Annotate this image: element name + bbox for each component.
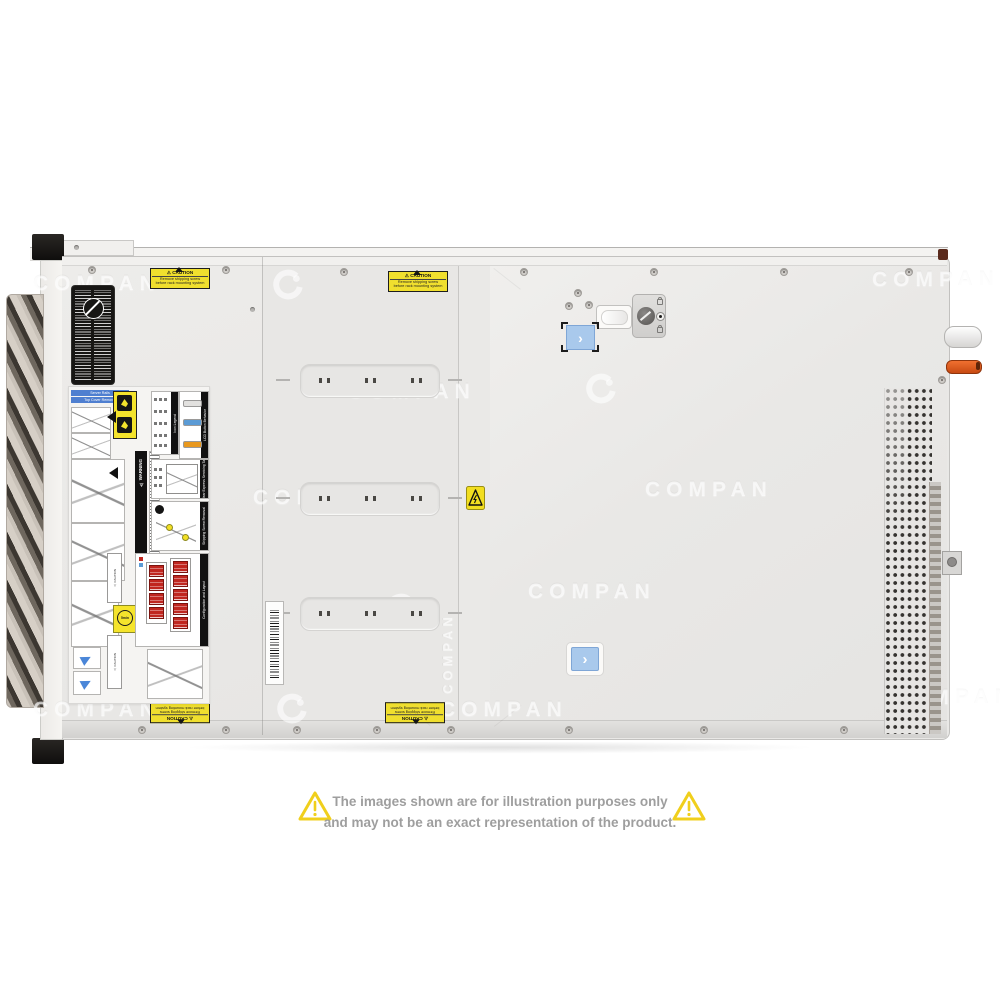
icon-legend-title: Icon Legend [173, 414, 177, 433]
rear-screw-stub [938, 249, 948, 260]
latch-arrow-icon [73, 671, 101, 695]
screw [565, 302, 573, 310]
pinch-hazard-sticker [113, 391, 137, 439]
drive-block [149, 593, 164, 605]
caution-strip: ⚠ CAUTION [107, 635, 122, 689]
vent-hole [250, 307, 255, 312]
cover-release-latch: › [562, 323, 598, 351]
caution-label: ⚠ CAUTION Remove shipping screw before r… [150, 268, 210, 289]
caution-label: ⚠ CAUTION Remove shipping screw before r… [385, 702, 445, 723]
screw-icon [155, 505, 164, 514]
watermark-text: COMPAN [872, 268, 1000, 292]
hand-pinch-icon [117, 395, 132, 411]
disclaimer-line-1: The images shown are for illustration pu… [0, 792, 1000, 813]
legend-row [154, 468, 163, 471]
caution-line: before rack mounting system [152, 705, 208, 710]
lcd-sticker-title: LCD Button Behavior [203, 409, 207, 441]
cover-release-latch: › [566, 642, 604, 676]
lcd-bar-gray [183, 400, 202, 407]
round-connector-knob [944, 326, 982, 348]
highlight-dot [166, 524, 173, 531]
barcode [270, 608, 279, 678]
screw [700, 726, 708, 734]
no-symbol-icon [83, 298, 104, 319]
screw [905, 268, 913, 276]
disclaimer-line-2: and may not be an exact representation o… [0, 813, 1000, 834]
shipping-diagram [156, 517, 196, 545]
watermark-text: COMPAN [440, 698, 568, 722]
lcd-behavior-sticker: LCD Button Behavior [179, 391, 209, 459]
vent-dots [319, 378, 332, 383]
config-title: Configuration and Layout [202, 581, 206, 619]
screw [340, 268, 348, 276]
legend-row [154, 444, 168, 447]
recessed-handle-slot [300, 482, 440, 516]
caution-line: before rack mounting system [387, 705, 443, 710]
caution-strip-title: ⚠ CAUTION [113, 653, 117, 671]
drive-block [173, 603, 188, 615]
seam-tick [276, 379, 290, 381]
screw [447, 726, 455, 734]
vent-dots [365, 611, 378, 616]
vent-dots [411, 611, 424, 616]
shipping-title: Shipping Screw Removal [202, 507, 206, 545]
screw [840, 726, 848, 734]
screw [222, 266, 230, 274]
lcd-bar-orange [183, 441, 202, 448]
screw [780, 268, 788, 276]
product-photo: COMPAN COMPAN COMPAN COMPAN COMPAN COMPA… [0, 0, 1000, 1000]
caution-strip: ⚠ CAUTION [107, 553, 122, 603]
warning-title: ⚠ WARNING [138, 459, 143, 486]
seam-tick [448, 497, 462, 499]
screw [373, 726, 381, 734]
orange-release-handle [946, 360, 982, 374]
key-cylinder-icon [637, 307, 655, 325]
screw [574, 289, 582, 297]
drive-block [149, 565, 164, 577]
service-label-cluster: Server Rails Top Cover Removal ⚠ WARNING… [68, 386, 210, 704]
regulatory-label [72, 286, 114, 384]
disclaimer: The images shown are for illustration pu… [0, 792, 1000, 834]
rear-tag-title: Rear Express Servicing Tag [202, 460, 206, 498]
screw [585, 301, 593, 309]
tag-diagram [166, 464, 198, 494]
watermark-text: COMPAN [528, 580, 656, 604]
electrical-hazard-icon [466, 486, 485, 510]
barcode-label [265, 601, 284, 685]
shipping-screw-sticker: Shipping Screw Removal [151, 501, 209, 551]
caution-label: ⚠ CAUTION Remove shipping screw before r… [388, 271, 448, 292]
legend-row [154, 398, 168, 401]
vent-grid-highlight [884, 388, 908, 538]
lock-closed-icon [657, 299, 663, 305]
chevron-right-icon: › [566, 325, 595, 350]
screw [650, 268, 658, 276]
drop-shadow [50, 742, 950, 760]
cover-slider-tab [596, 305, 632, 329]
highlight-dot [182, 534, 189, 541]
rack-ear-top [32, 234, 64, 260]
legend-blue-swatch [139, 563, 143, 567]
seam-tick [448, 379, 462, 381]
screw [222, 726, 230, 734]
caution-label: ⚠ CAUTION Remove shipping screw before r… [150, 702, 210, 723]
caution-title: ⚠ CAUTION [152, 714, 208, 721]
seam-tick [448, 612, 462, 614]
screw [938, 376, 946, 384]
caution-title: ⚠ CAUTION [390, 273, 446, 280]
warning-strip: ⚠ WARNING [135, 451, 147, 557]
legend-row [154, 434, 168, 437]
vent-dots [365, 378, 378, 383]
side-metal-clip [942, 551, 962, 575]
watermark-logo-icon [274, 692, 308, 730]
drive-block [149, 607, 164, 619]
watermark-text-vertical: COMPAN [440, 630, 455, 694]
screw [88, 266, 96, 274]
clock-5min-icon: 5min [117, 610, 133, 626]
configuration-sticker: Configuration and Layout [135, 553, 209, 647]
caution-title: ⚠ CAUTION [387, 714, 443, 721]
caution-line: before rack mounting system [152, 281, 208, 286]
screw [293, 726, 301, 734]
icon-legend-sticker: Icon Legend [151, 391, 179, 455]
caution-line: Remove shipping screw [152, 710, 208, 715]
caution-line: before rack mounting system [390, 284, 446, 289]
latch-arrow-icon [73, 647, 101, 669]
caution-title: ⚠ CAUTION [152, 270, 208, 277]
drive-block [173, 589, 188, 601]
lock-button [656, 312, 665, 321]
recessed-handle-slot [300, 597, 440, 631]
watermark-logo-icon [270, 268, 304, 306]
chevron-right-icon: › [571, 647, 599, 671]
cover-top-band [62, 257, 947, 266]
vent-dots [319, 611, 332, 616]
vent-dots [365, 496, 378, 501]
legend-row [154, 476, 163, 479]
diagram-sketch [71, 433, 111, 459]
drive-block [149, 579, 164, 591]
watermark-logo-icon [583, 372, 617, 410]
screw [565, 726, 573, 734]
key-lock [632, 294, 666, 338]
vent-dots [411, 378, 424, 383]
drive-block [173, 617, 188, 629]
screw-hole [74, 245, 79, 250]
legend-row [154, 410, 168, 413]
lock-open-icon [657, 327, 663, 333]
drive-block [173, 561, 188, 573]
screw [138, 726, 146, 734]
caution-strip-title: ⚠ CAUTION [113, 569, 117, 587]
drive-block [173, 575, 188, 587]
pointer-arrow-icon [103, 467, 118, 479]
recessed-handle-slot [300, 364, 440, 398]
wait-5min-sticker: 5min [113, 605, 137, 633]
legend-row [154, 422, 168, 425]
caution-line: Remove shipping screw [387, 710, 443, 715]
legend-red-swatch [139, 557, 143, 561]
watermark-text: COMPAN [645, 478, 773, 502]
pointer-arrow-icon [101, 411, 116, 423]
chassis-top-tab [58, 240, 134, 256]
front-latch-zigzag [6, 294, 44, 708]
seam-tick [276, 497, 290, 499]
side-rail-serration [929, 482, 941, 734]
hand-pinch-icon [117, 417, 132, 433]
vent-dots [319, 496, 332, 501]
vent-dots [411, 496, 424, 501]
drive-iso-diagram [147, 649, 203, 699]
lcd-bar-blue [183, 419, 202, 426]
rear-service-tag-sticker: Rear Express Servicing Tag [151, 459, 209, 499]
screw [520, 268, 528, 276]
legend-row [154, 484, 163, 487]
